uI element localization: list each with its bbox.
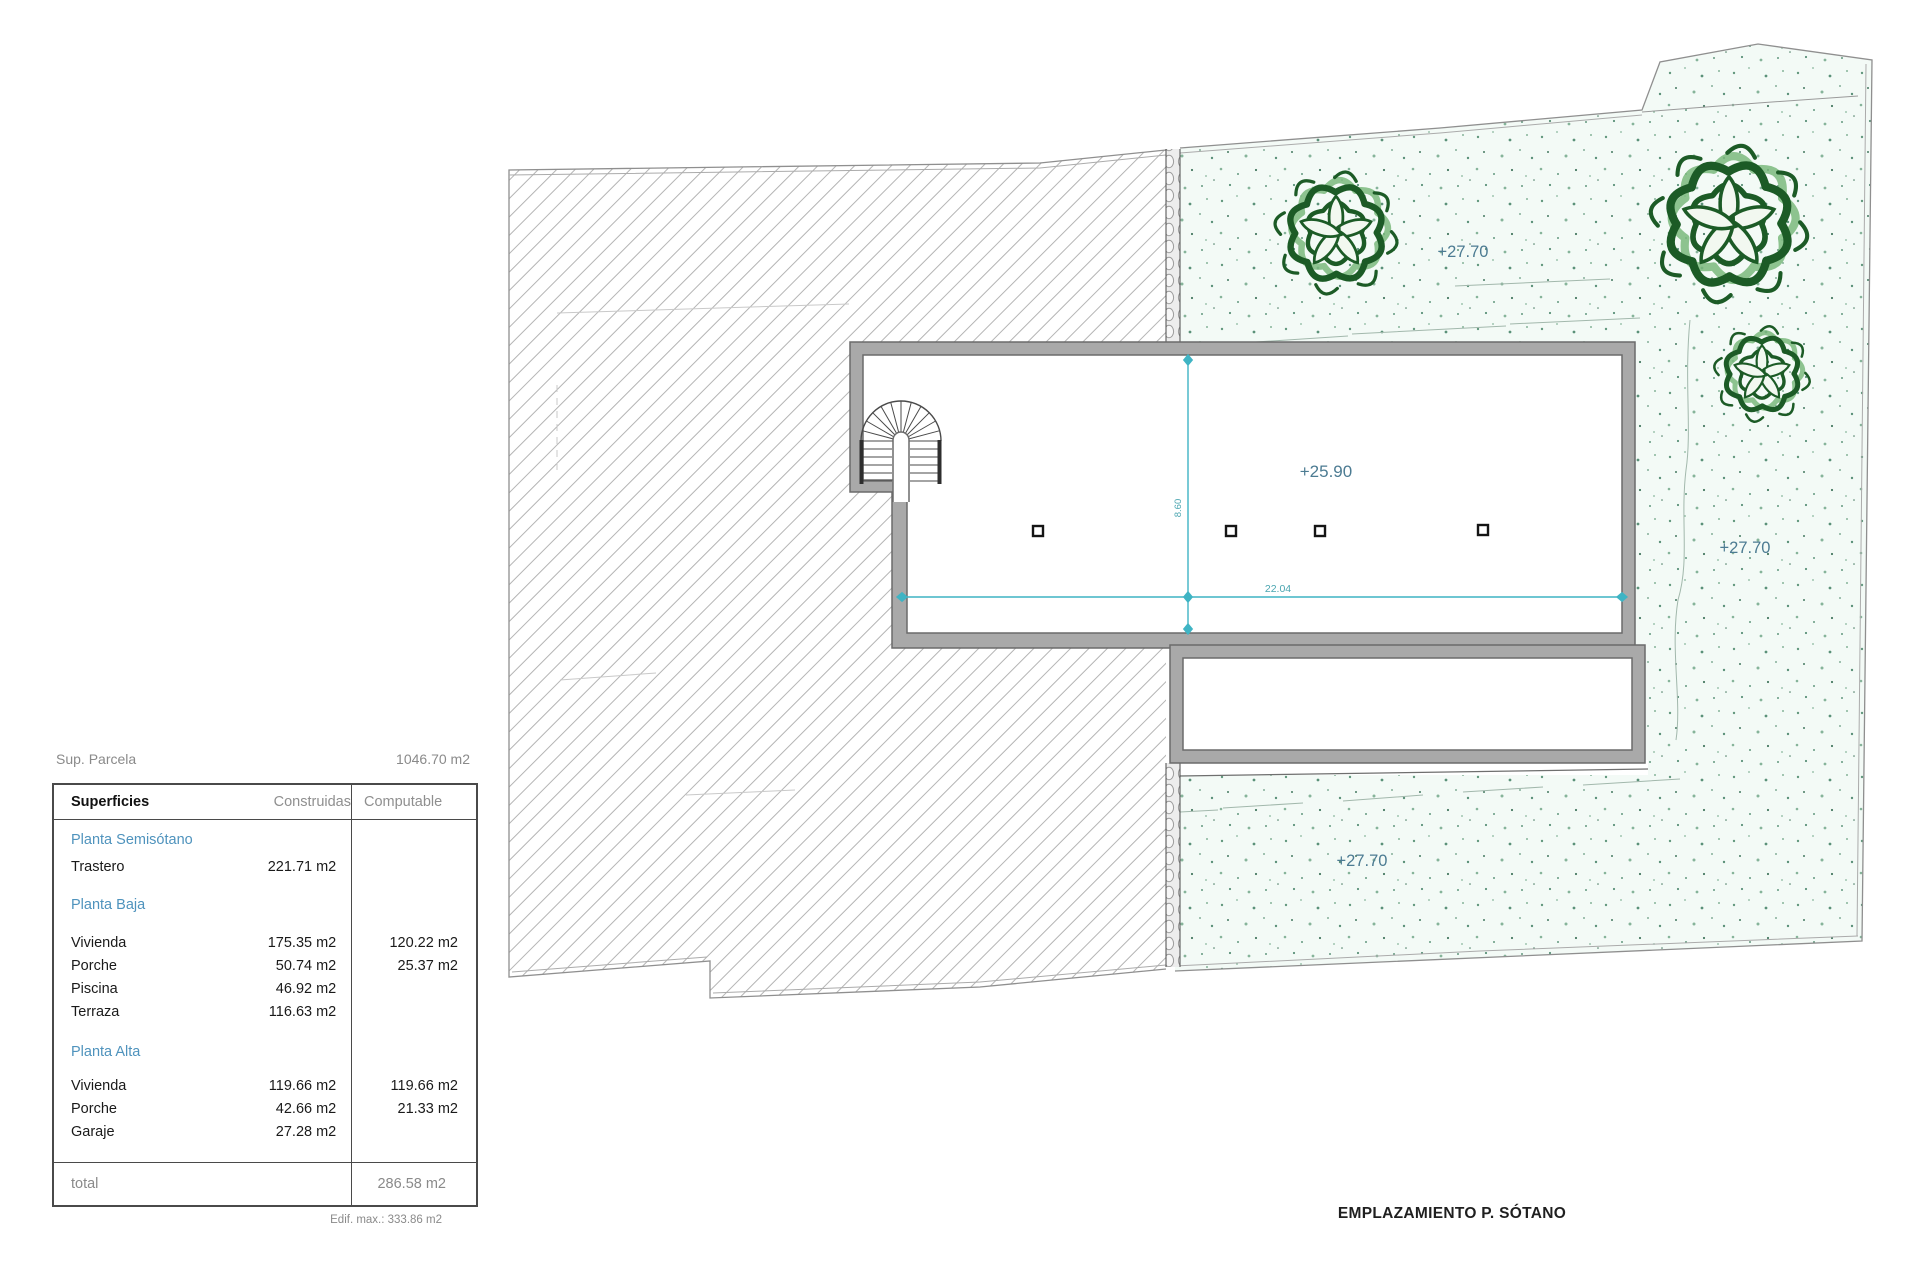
header-computable: Computable <box>351 794 442 810</box>
section-row: Planta Baja <box>54 894 476 916</box>
row-built: 221.71 m2 <box>190 856 336 879</box>
row-label: Garaje <box>54 1121 190 1144</box>
row-label: Porche <box>54 955 190 978</box>
max-buildable-note: Edif. max.: 333.86 m2 <box>52 1214 478 1226</box>
row-built: 50.74 m2 <box>190 955 336 978</box>
row-built: 27.28 m2 <box>190 1121 336 1144</box>
row-comp: 119.66 m2 <box>336 1075 476 1098</box>
table-column-divider <box>351 785 352 1205</box>
row-built: 42.66 m2 <box>190 1098 336 1121</box>
section-row: Planta Alta <box>54 1041 476 1063</box>
level-garden-top: +27.70 <box>1438 243 1489 261</box>
site-plan-page: { "site_info": { "label": "Sup. Parcela"… <box>0 0 1920 1280</box>
row-comp <box>336 1001 476 1024</box>
table-row: Trastero 221.71 m2 <box>54 856 476 879</box>
table-body: Planta Semisótano Trastero 221.71 m2 Pla… <box>54 829 476 1162</box>
row-label: Piscina <box>54 978 190 1001</box>
surfaces-panel: Sup. Parcela 1046.70 m2 Superficies Cons… <box>52 750 478 1226</box>
row-comp <box>336 1121 476 1144</box>
table-row: Vivienda 119.66 m2 119.66 m2 <box>54 1075 476 1098</box>
row-built: 116.63 m2 <box>190 1001 336 1024</box>
table-row: Piscina 46.92 m2 <box>54 978 476 1001</box>
surfaces-table: Superficies Construidas Computable Plant… <box>52 783 478 1207</box>
table-row: Vivienda 175.35 m2 120.22 m2 <box>54 932 476 955</box>
parcel-area-value: 1046.70 m2 <box>396 750 470 768</box>
table-row: Porche 42.66 m2 21.33 m2 <box>54 1098 476 1121</box>
row-comp: 25.37 m2 <box>336 955 476 978</box>
header-superficies: Superficies <box>54 794 201 810</box>
dim-depth-label: 8.60 <box>1173 499 1184 518</box>
total-label: total <box>54 1163 336 1205</box>
row-comp <box>336 856 476 879</box>
row-built: 46.92 m2 <box>190 978 336 1001</box>
level-garden-right: +27.70 <box>1720 539 1771 557</box>
parcel-area-row: Sup. Parcela 1046.70 m2 <box>52 750 478 768</box>
row-label: Porche <box>54 1098 190 1121</box>
header-construidas: Construidas <box>201 794 351 810</box>
pool-outline <box>1170 645 1645 763</box>
level-garden-bottom: +27.70 <box>1337 852 1388 870</box>
row-label: Trastero <box>54 856 190 879</box>
table-row: Porche 50.74 m2 25.37 m2 <box>54 955 476 978</box>
plan-caption: EMPLAZAMIENTO P. SÓTANO <box>1338 1204 1566 1222</box>
row-label: Vivienda <box>54 1075 190 1098</box>
row-comp: 21.33 m2 <box>336 1098 476 1121</box>
row-built: 175.35 m2 <box>190 932 336 955</box>
parcel-area-label: Sup. Parcela <box>56 750 136 768</box>
building-outline <box>850 342 1635 648</box>
total-row: total 286.58 m2 <box>54 1162 476 1205</box>
row-label: Terraza <box>54 1001 190 1024</box>
section-row: Planta Semisótano <box>54 829 476 851</box>
total-value: 286.58 m2 <box>336 1163 476 1205</box>
table-header-row: Superficies Construidas Computable <box>54 785 476 820</box>
table-row: Garaje 27.28 m2 <box>54 1121 476 1144</box>
row-label: Vivienda <box>54 932 190 955</box>
level-floor: +25.90 <box>1300 462 1352 481</box>
dim-width-label: 22.04 <box>1265 583 1291 595</box>
row-built: 119.66 m2 <box>190 1075 336 1098</box>
row-comp <box>336 978 476 1001</box>
row-comp: 120.22 m2 <box>336 932 476 955</box>
table-row: Terraza 116.63 m2 <box>54 1001 476 1024</box>
